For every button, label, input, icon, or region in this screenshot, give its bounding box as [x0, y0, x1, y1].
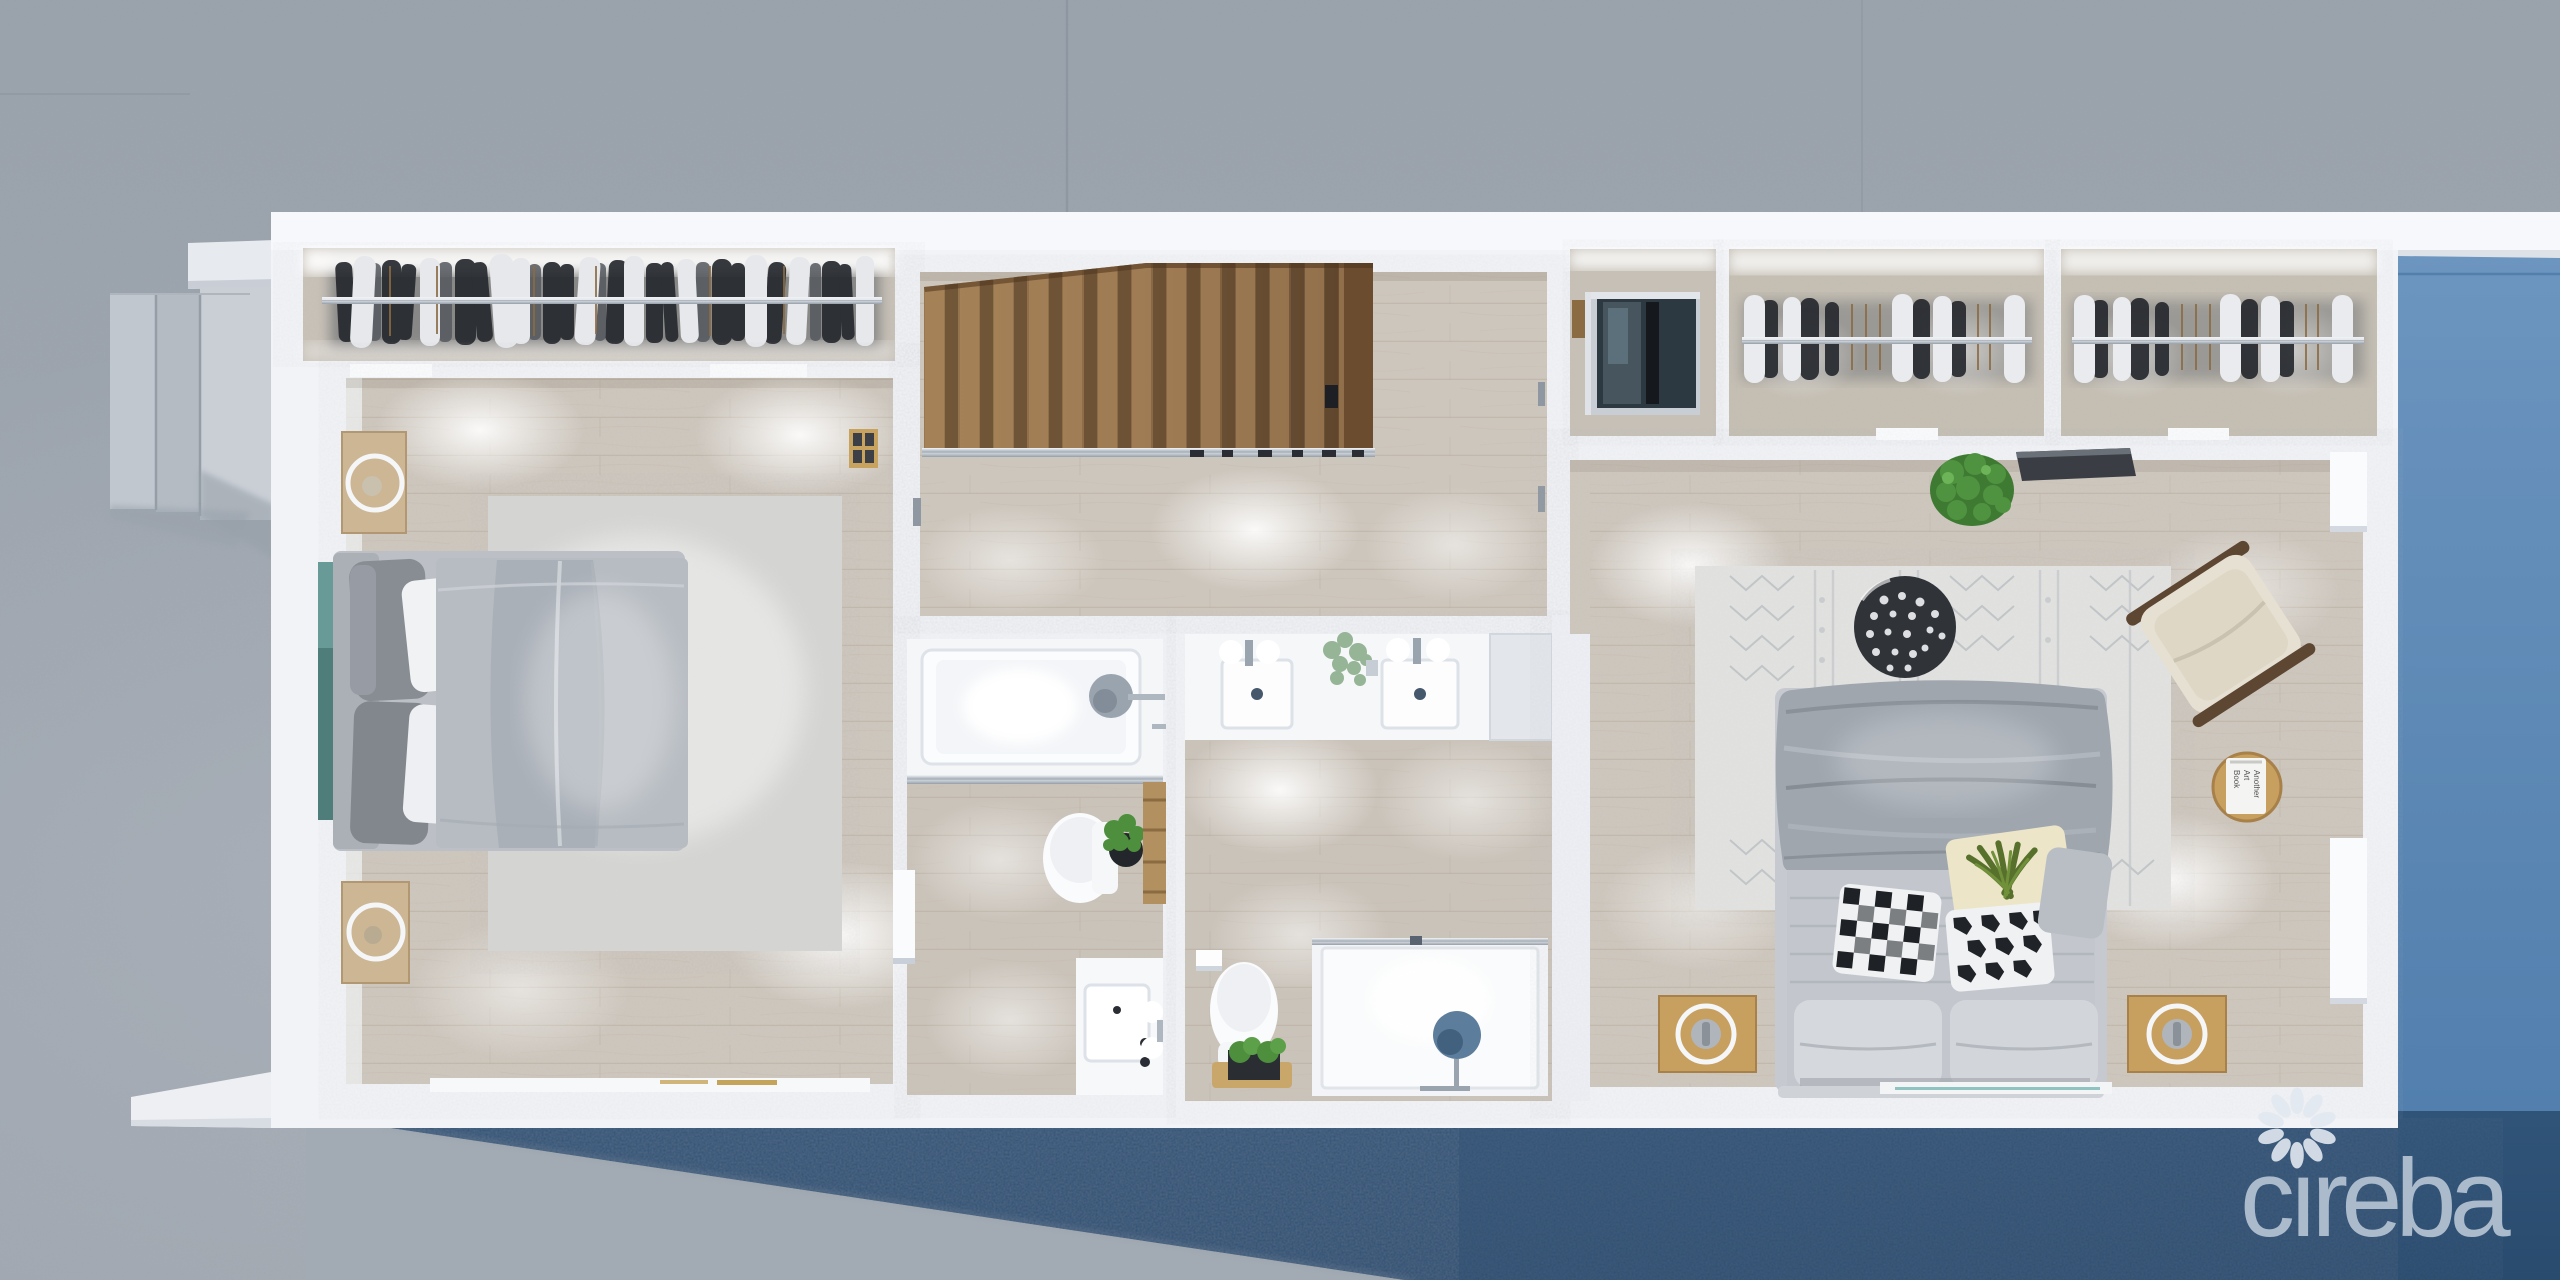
svg-text:Art: Art	[2242, 770, 2251, 781]
svg-text:Book: Book	[2232, 770, 2241, 789]
svg-text:Another: Another	[2252, 770, 2261, 798]
svg-text:cıreba: cıreba	[2240, 1137, 2512, 1260]
